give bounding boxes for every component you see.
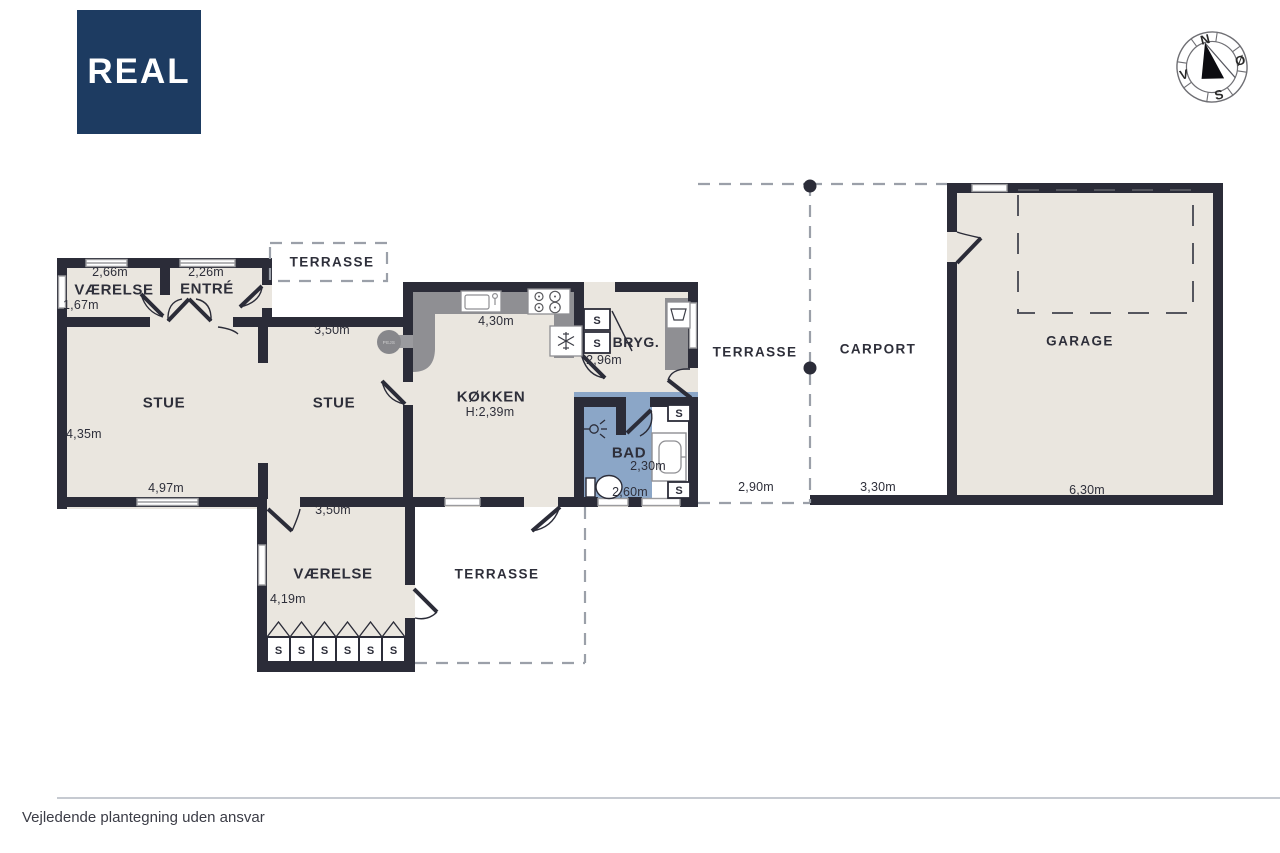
- freezer-icon: [550, 326, 582, 356]
- closet-label: S: [275, 645, 282, 657]
- dim-entre-width: 2,26m: [188, 265, 224, 279]
- laundry-sink-icon: [667, 302, 690, 328]
- room-label-entre: ENTRÉ: [180, 281, 234, 298]
- carport-post: [804, 180, 817, 193]
- dim-stue-left-width: 4,97m: [148, 481, 184, 495]
- floor-plan: PEJS: [0, 0, 1280, 853]
- dim-vaerelse-s-width: 3,50m: [315, 503, 351, 517]
- closet-label: S: [593, 315, 600, 327]
- closet-label: S: [675, 408, 682, 420]
- room-label-vaerelse-s: VÆRELSE: [293, 566, 372, 583]
- dim-terrasse-mid-width: 2,90m: [738, 480, 774, 494]
- room-label-bryg: BRYG.: [613, 334, 660, 350]
- closet-label: S: [367, 645, 374, 657]
- footer-disclaimer: Vejledende plantegning uden ansvar: [22, 809, 265, 826]
- dim-vaerelse-nw-width: 2,66m: [92, 265, 128, 279]
- room-label-stue-right: STUE: [313, 395, 355, 412]
- closet-label: S: [344, 645, 351, 657]
- fireplace-label: PEJS: [383, 340, 395, 345]
- dim-bad-depth: 2,30m: [630, 459, 666, 473]
- stove-icon: [528, 289, 570, 314]
- closet-label: S: [390, 645, 397, 657]
- room-label-vaerelse-nw: VÆRELSE: [74, 282, 153, 299]
- dim-vaerelse-nw-depth: 1,67m: [63, 298, 99, 312]
- room-label-terrasse-mid: TERRASSE: [713, 345, 798, 360]
- floorplan-page: REAL N Ø S V: [0, 0, 1280, 853]
- closet-label: S: [321, 645, 328, 657]
- dim-koekken-ceiling-height: H:2,39m: [466, 405, 515, 419]
- dim-bad-width: 2,60m: [612, 485, 648, 499]
- closet-label: S: [675, 485, 682, 497]
- closet-label: S: [298, 645, 305, 657]
- room-label-carport: CARPORT: [840, 342, 917, 357]
- dim-bryg-width: 2,96m: [586, 353, 622, 367]
- kitchen-sink-icon: [461, 291, 501, 312]
- dim-stue-left-depth: 4,35m: [66, 427, 102, 441]
- room-label-koekken: KØKKEN: [457, 389, 526, 406]
- footer-divider: [57, 797, 1280, 799]
- room-label-terrasse-s: TERRASSE: [455, 567, 540, 582]
- dim-garage-width: 6,30m: [1069, 483, 1105, 497]
- bathroom-vanity-icon: [652, 433, 686, 481]
- dim-stue-right-width: 3,50m: [314, 323, 350, 337]
- dim-carport-width: 3,30m: [860, 480, 896, 494]
- dim-koekken-width: 4,30m: [478, 314, 514, 328]
- floor-fills: [57, 183, 1223, 672]
- room-label-garage: GARAGE: [1046, 334, 1114, 349]
- dim-vaerelse-s-depth: 4,19m: [270, 592, 306, 606]
- carport-post: [804, 362, 817, 375]
- closet-label: S: [593, 338, 600, 350]
- room-label-stue-left: STUE: [143, 395, 185, 412]
- room-label-terrasse-top: TERRASSE: [290, 255, 375, 270]
